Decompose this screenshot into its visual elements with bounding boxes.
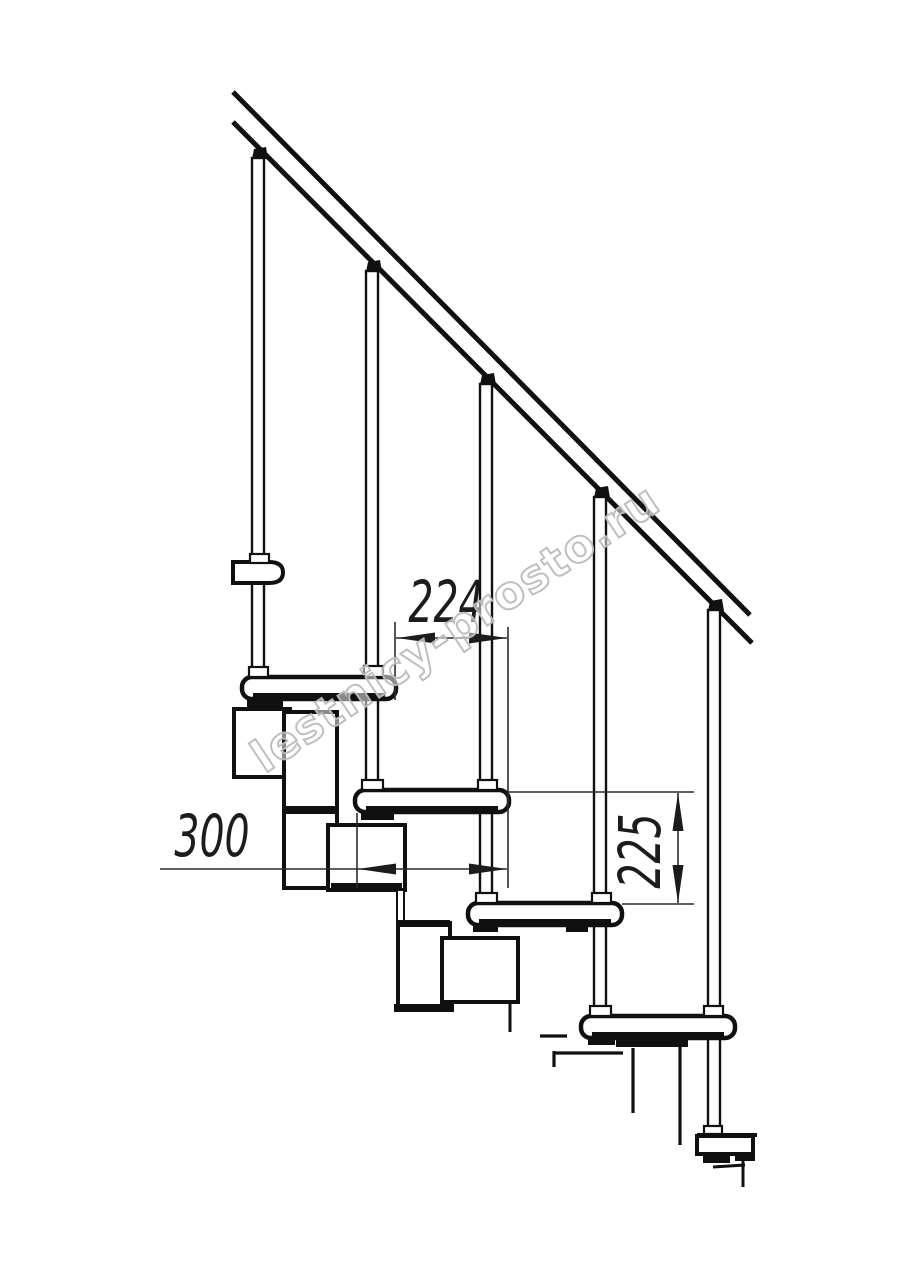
module-connector-tube (397, 890, 404, 923)
baluster-shaft (480, 384, 492, 903)
staircase-drawing: 224 300 225 lestnicy-prosto.ru (0, 0, 914, 1280)
blueprint-page: 224 300 225 lestnicy-prosto.ru (0, 0, 914, 1280)
module-3a-top-shadow (396, 920, 450, 927)
stringer-break-lines (540, 1036, 680, 1145)
step-mount-tab (473, 923, 498, 932)
baluster-shaft (252, 158, 264, 677)
arrowhead-down-icon (673, 865, 684, 903)
step-module-shadow (616, 1039, 688, 1047)
module-1-shadow (284, 806, 337, 814)
stringer-module-3b (442, 938, 518, 1002)
floor-base-shadow (735, 1152, 755, 1161)
baluster-5 (708, 599, 724, 1133)
module-3a-bottom-shadow (394, 1004, 454, 1012)
arrowhead-up-icon (673, 793, 684, 831)
floor-break-horizontal (713, 1165, 745, 1167)
step-mount-tab (566, 923, 588, 932)
baluster-shaft (708, 610, 720, 1133)
dimension-225-label: 225 (606, 813, 674, 888)
step-underside-shadow (479, 919, 611, 924)
floor-base-bracket (697, 1135, 757, 1187)
dimension-300-label: 300 (174, 802, 249, 870)
baluster-1 (252, 147, 268, 677)
step-mount-tab (588, 1036, 615, 1045)
step-mount-tab (361, 810, 394, 820)
step-mount-tab (247, 697, 283, 707)
module-2-shadow (331, 883, 402, 889)
floor-base-tab (703, 1153, 730, 1163)
baluster-shaft (594, 497, 606, 1016)
stringer-module-2 (328, 825, 405, 890)
floor-base-box (697, 1136, 753, 1154)
landing-rail-collar (233, 562, 283, 583)
